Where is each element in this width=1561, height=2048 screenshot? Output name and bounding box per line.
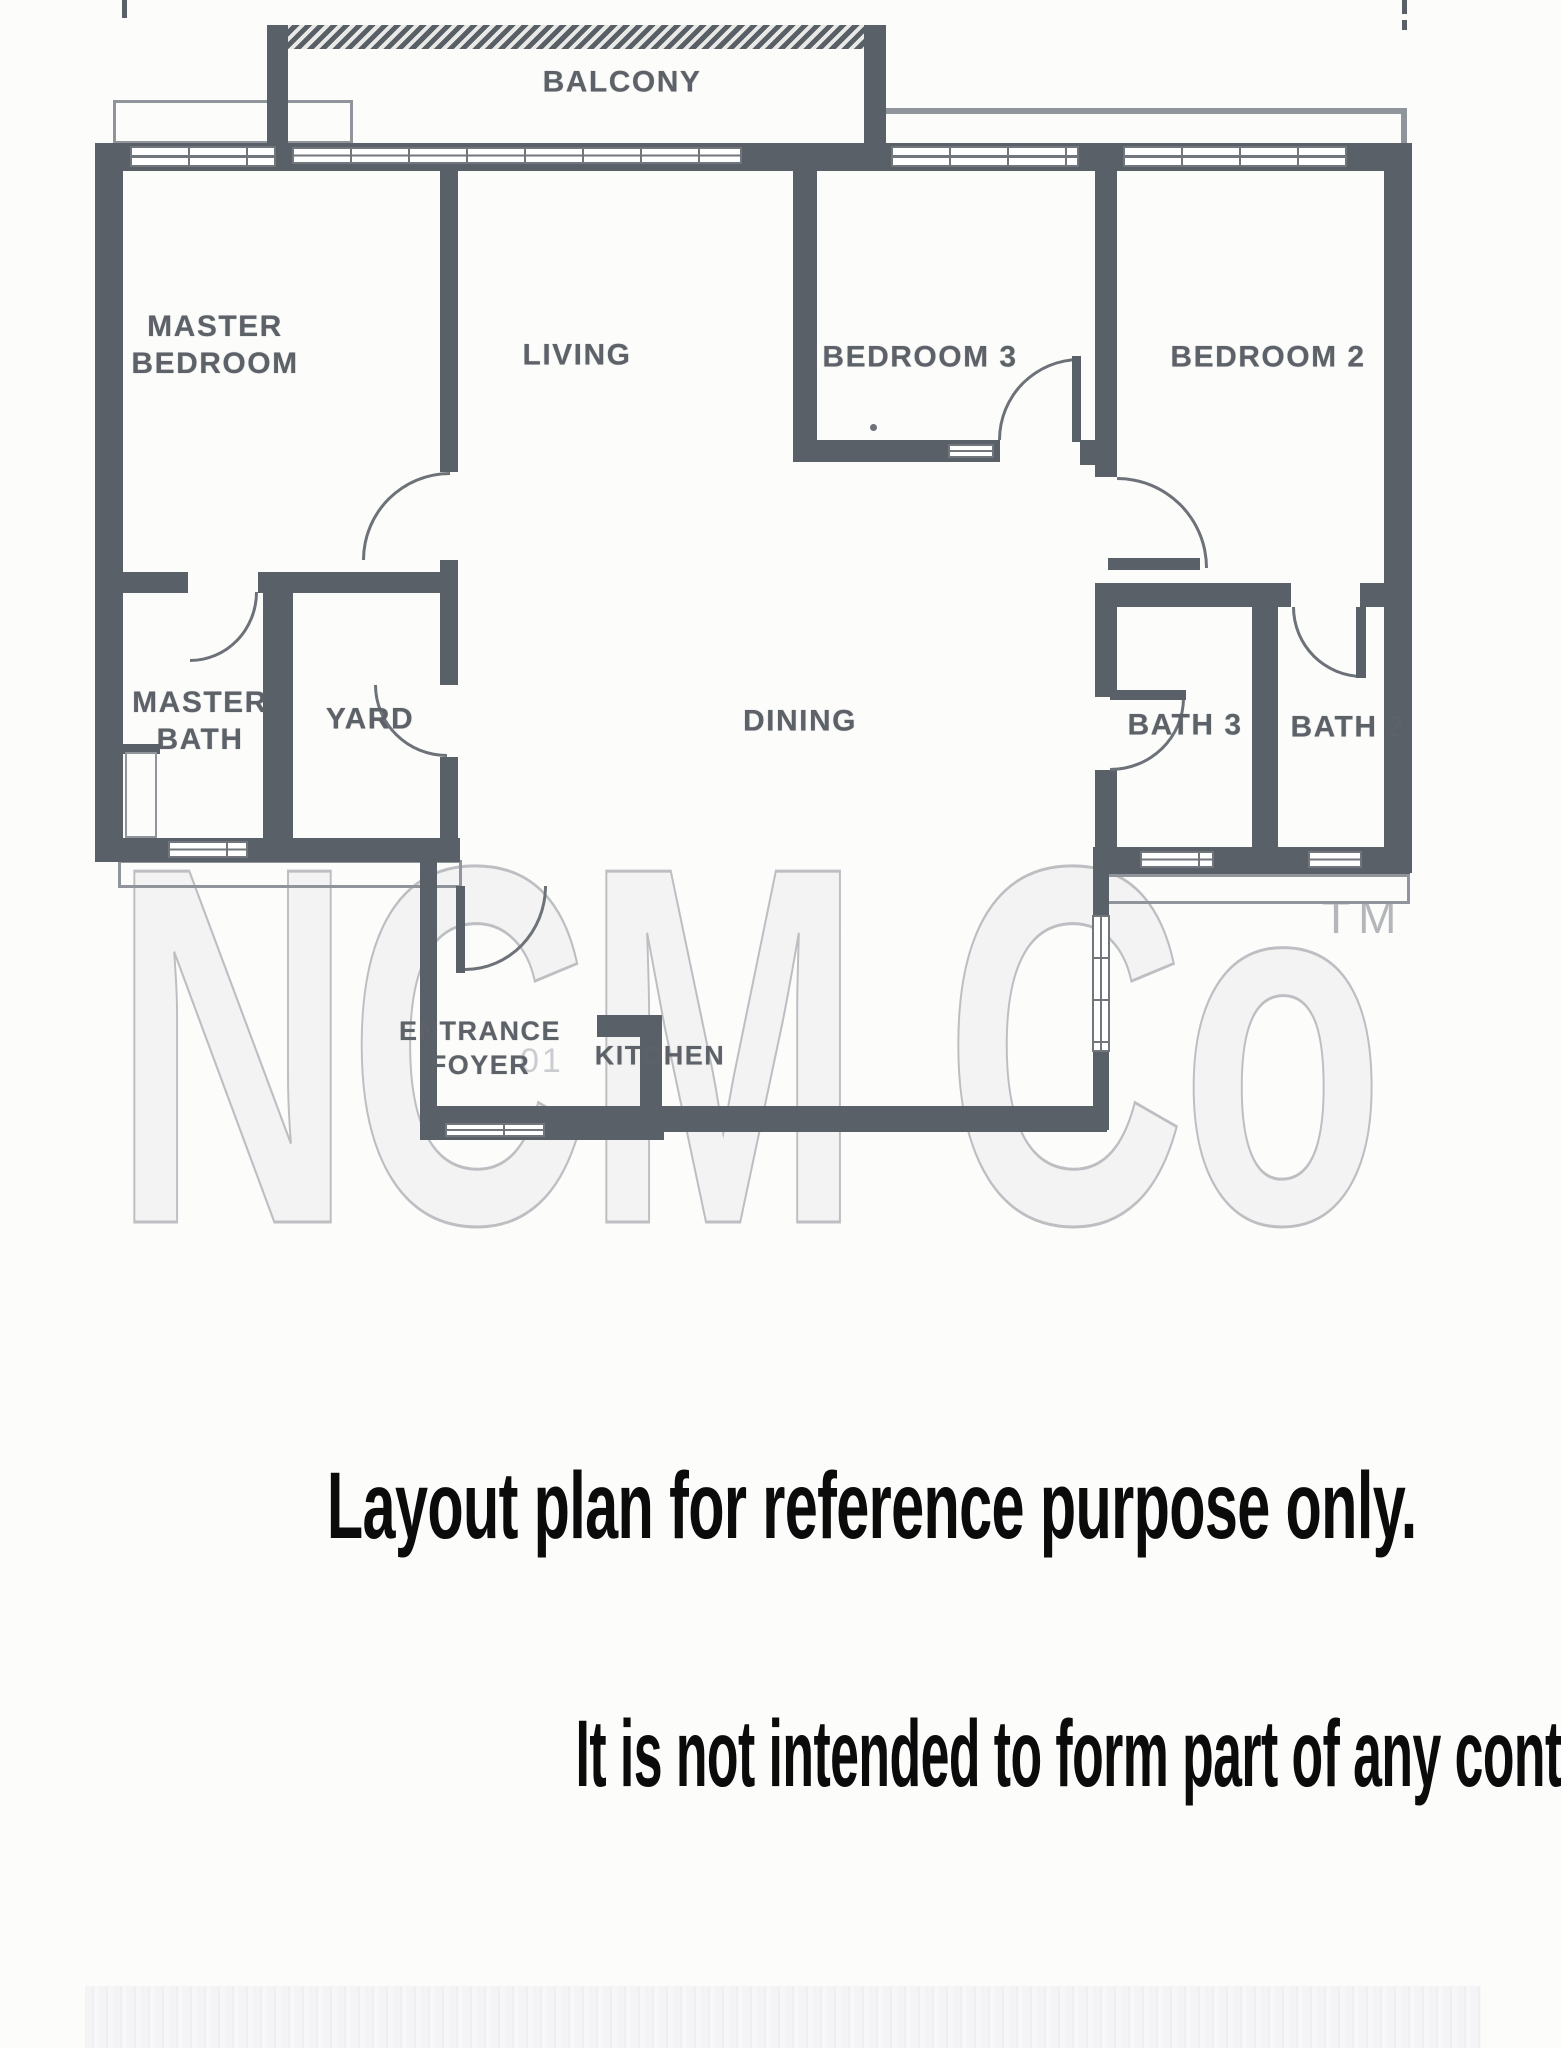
room-label-entrance-foyer-line2: FOYER [399, 1048, 561, 1082]
scan-tick-top-left [122, 0, 127, 18]
room-label-master-bedroom-line1: MASTER [131, 308, 298, 345]
watermark-text: NCM Co [112, 848, 1379, 1246]
ac-ledge-bottom-left [118, 860, 462, 888]
window-foyer-bottom [445, 1123, 545, 1137]
room-label-living: LIVING [522, 337, 631, 374]
room-label-bath3: BATH 3 [1127, 707, 1242, 744]
room-label-entrance-foyer-line1: ENTRANCE [399, 1014, 561, 1048]
scanned-floor-plan-page: NCM Co TM 01 [0, 0, 1561, 2048]
scan-tick-top-right-2 [1402, 20, 1407, 30]
room-label-yard: YARD [326, 701, 414, 738]
room-label-master-bedroom: MASTER BEDROOM [131, 308, 298, 382]
room-label-bedroom3: BEDROOM 3 [822, 339, 1017, 376]
wall-bedroom3-left [793, 165, 817, 462]
door-arc-bedroom2 [1117, 477, 1208, 568]
masterbath-shower-fixture [125, 752, 157, 838]
wall-baths-top-left [1095, 583, 1291, 607]
canopy-line-right [885, 108, 1407, 114]
window-balcony-slider [292, 147, 742, 164]
room-label-master-bath: MASTER BATH [132, 684, 268, 758]
wall-right-exterior [1384, 143, 1412, 873]
wall-masterbed-bottom-left [108, 572, 188, 593]
door-leaf-bedroom3 [1072, 356, 1081, 442]
disclaimer-line2-wrap: It is not intended to form part of any c… [0, 1700, 1561, 1809]
scan-speck [870, 424, 877, 431]
wall-yard-dining-upper [440, 560, 458, 685]
disclaimer-line2: It is not intended to form part of any c… [576, 1700, 1561, 1809]
window-master-bath [168, 841, 248, 858]
disclaimer-line1-wrap: Layout plan for reference purpose only. [0, 1452, 1561, 1561]
room-label-bedroom2: BEDROOM 2 [1170, 339, 1365, 376]
room-label-dining: DINING [743, 703, 857, 740]
room-label-kitchen: KITCHEN [595, 1038, 726, 1075]
wall-masterbed-bottom-right [258, 572, 440, 593]
door-leaf-entrance [456, 886, 465, 973]
window-bath3 [1140, 851, 1214, 868]
balcony-wall-left [267, 25, 288, 145]
ac-ledge-bottom-right [1093, 874, 1410, 904]
wall-foyer-right-stub [597, 1015, 642, 1037]
wall-masterbed-living-upper [440, 171, 458, 472]
disclaimer-line1: Layout plan for reference purpose only. [327, 1452, 1417, 1561]
window-master-bedroom [130, 146, 276, 167]
canopy-line-corner [1401, 108, 1407, 146]
room-label-master-bath-line1: MASTER [132, 684, 268, 721]
room-label-master-bedroom-line2: BEDROOM [131, 345, 298, 382]
window-bedroom3 [891, 146, 1079, 167]
planter-ledge-top-left [113, 100, 353, 144]
window-kitchen-right [1092, 915, 1110, 1052]
scan-noise-band [85, 1986, 1481, 2048]
wall-bedroom3-door-jamb [1080, 440, 1095, 465]
door-leaf-bath3 [1110, 690, 1186, 700]
window-bedroom2 [1123, 146, 1347, 167]
scan-tick-top-right [1402, 0, 1407, 14]
wall-foyer-right [640, 1015, 662, 1140]
room-label-balcony: BALCONY [543, 64, 702, 101]
door-arc-bath2 [1292, 607, 1363, 678]
wall-baths-top-right [1360, 583, 1406, 607]
balcony-parapet-top [267, 25, 885, 49]
window-bath2 [1308, 851, 1362, 868]
room-label-entrance-foyer: ENTRANCE FOYER [399, 1014, 561, 1082]
room-label-master-bath-line2: BATH [132, 721, 268, 758]
door-arc-master-bedroom [362, 472, 450, 560]
wall-foyer-left [420, 858, 437, 1140]
door-arc-master-bath [190, 592, 258, 662]
wall-bottom-left-exterior [95, 838, 460, 862]
wall-bedroom3-bedroom2-divider [1095, 165, 1117, 477]
wall-left-exterior [95, 143, 123, 860]
wall-bath3-bath2-divider [1252, 607, 1278, 874]
room-label-bath2: BATH 2 [1290, 709, 1405, 746]
window-bedroom3-bottom [948, 444, 994, 458]
wall-bath3-left-upper [1095, 583, 1117, 697]
door-leaf-bath2 [1356, 607, 1366, 678]
door-leaf-bedroom2 [1108, 558, 1200, 570]
